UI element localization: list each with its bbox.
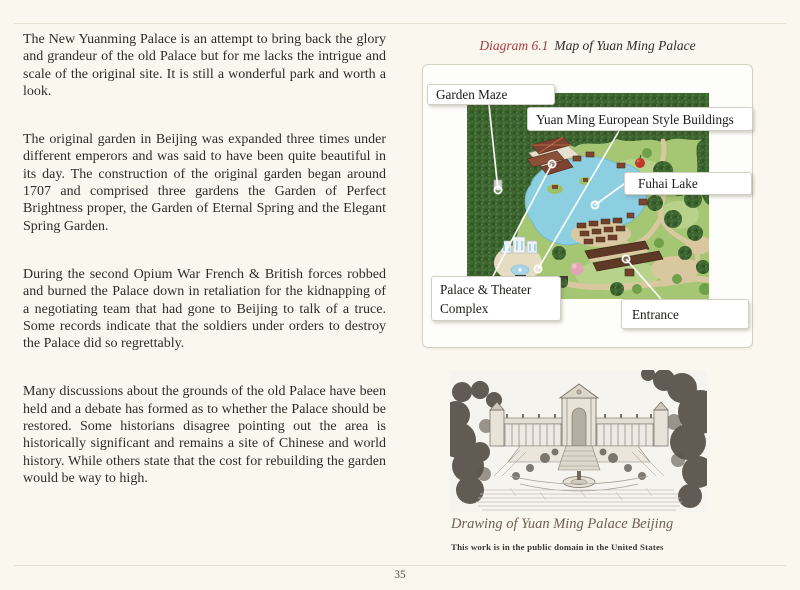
- callout-palace-theater: Palace & Theater Complex: [431, 276, 561, 321]
- paragraph: The New Yuanming Palace is an attempt to…: [23, 31, 386, 100]
- diagram-title-text: Map of Yuan Ming Palace: [554, 38, 695, 53]
- callout-fuhai-lake: Fuhai Lake: [624, 172, 752, 195]
- callout-european-buildings: Yuan Ming European Style Buildings: [527, 107, 753, 131]
- callout-garden-maze: Garden Maze: [427, 84, 555, 105]
- book-page: The New Yuanming Palace is an attempt to…: [0, 0, 800, 590]
- paragraph: Many discussions about the grounds of th…: [23, 383, 386, 487]
- palace-engraving-drawing: [450, 370, 707, 512]
- figure-license-note: This work is in the public domain in the…: [451, 542, 664, 552]
- footer-rule: [14, 565, 786, 566]
- figure-caption: Drawing of Yuan Ming Palace Beijing: [451, 516, 673, 533]
- paragraph: The original garden in Beijing was expan…: [23, 131, 386, 235]
- paragraph: During the second Opium War French & Bri…: [23, 266, 386, 352]
- page-number: 35: [0, 569, 800, 581]
- diagram-number-label: Diagram 6.1: [479, 38, 548, 53]
- header-rule: [14, 23, 786, 24]
- map-card: Garden Maze Yuan Ming European Style Bui…: [422, 64, 753, 348]
- article-column: The New Yuanming Palace is an attempt to…: [23, 31, 386, 518]
- diagram-title: Diagram 6.1Map of Yuan Ming Palace: [422, 38, 753, 54]
- callout-entrance: Entrance: [621, 299, 749, 329]
